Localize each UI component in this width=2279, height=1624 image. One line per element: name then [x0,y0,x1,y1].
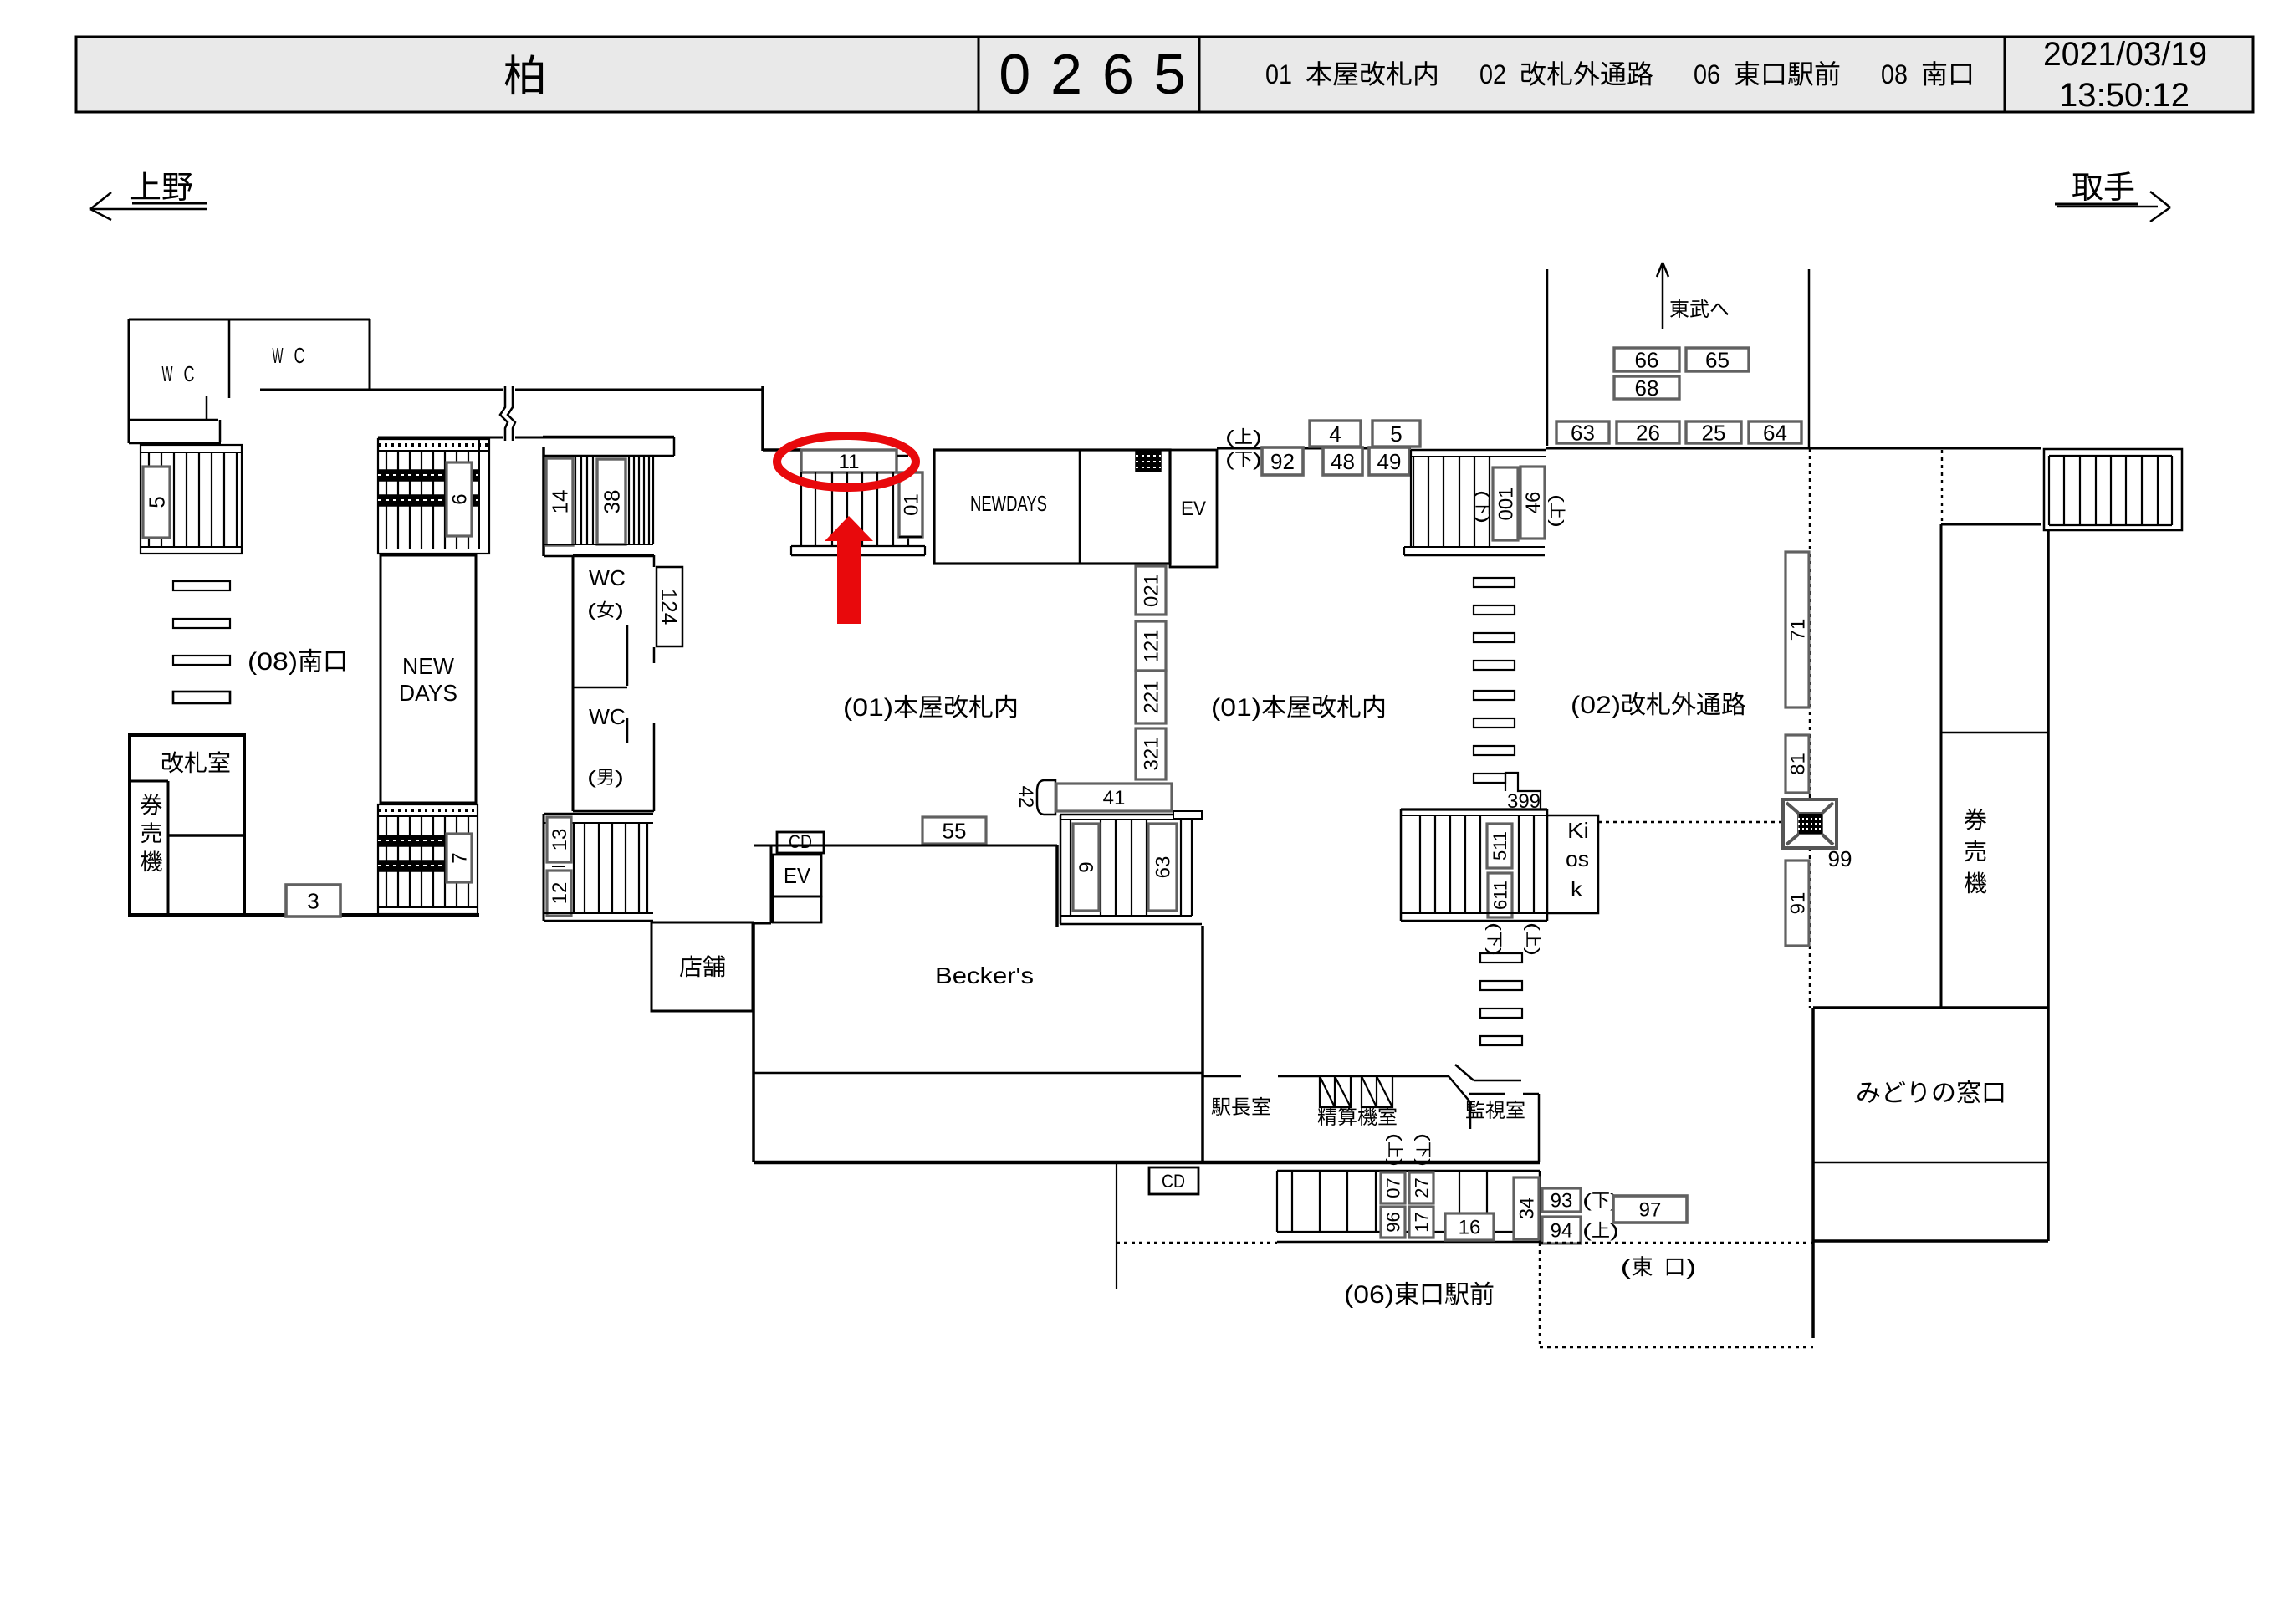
svg-text:08: 08 [1881,59,1908,89]
svg-text:6: 6 [449,493,472,504]
svg-text:92: 92 [1270,449,1295,474]
svg-text:2021/03/19: 2021/03/19 [2043,36,2207,73]
svg-text:01: 01 [901,493,923,516]
svg-text:CD: CD [789,831,812,852]
svg-text:9: 9 [1076,861,1098,872]
svg-text:C: C [294,343,305,368]
svg-text:65: 65 [1705,347,1730,372]
svg-text:NEW: NEW [402,653,455,679]
svg-text:07: 07 [1382,1177,1403,1198]
svg-text:WC: WC [589,704,626,729]
svg-text:(: ( [1582,1220,1592,1241]
svg-text:001: 001 [1495,487,1518,520]
svg-text:221: 221 [1141,680,1163,713]
svg-text:321: 321 [1141,737,1163,770]
svg-text:25: 25 [1702,420,1726,445]
svg-text:3: 3 [307,888,319,913]
svg-text:55: 55 [943,818,967,843]
svg-text:121: 121 [1141,629,1163,662]
svg-text:06: 06 [1694,59,1720,89]
svg-text:(: ( [1225,426,1235,447]
svg-text:68: 68 [1635,375,1659,401]
svg-text:k: k [1571,876,1583,901]
svg-text:0265: 0265 [999,43,1205,106]
svg-text:91: 91 [1787,892,1810,915]
svg-text:(: ( [1473,490,1491,498]
svg-text:63: 63 [1571,420,1595,445]
svg-text:(: ( [1582,1190,1592,1211]
svg-text:49: 49 [1377,449,1402,474]
svg-text:64: 64 [1763,420,1787,445]
svg-text:34: 34 [1516,1198,1539,1220]
svg-text:511: 511 [1490,831,1510,861]
svg-text:94: 94 [1551,1220,1573,1243]
svg-text:4: 4 [1329,421,1341,447]
svg-text:96: 96 [1382,1212,1403,1232]
svg-text:EV: EV [784,863,811,888]
svg-text:W: W [162,361,173,386]
svg-text:): ) [1385,1158,1403,1167]
svg-text:): ) [1473,515,1491,523]
svg-text:os: os [1566,846,1589,871]
svg-text:38: 38 [599,490,624,514]
svg-text:(: ( [587,767,597,788]
svg-text:13:50:12: 13:50:12 [2059,77,2190,114]
svg-text:14: 14 [547,490,572,514]
svg-text:(: ( [1413,1133,1432,1141]
svg-text:EV: EV [1181,498,1206,520]
svg-text:W: W [273,343,284,368]
svg-text:(01): (01) [843,694,893,722]
svg-text:WC: WC [589,565,626,590]
svg-text:27: 27 [1411,1177,1432,1198]
svg-text:41: 41 [1103,787,1126,809]
svg-text:11: 11 [839,451,860,473]
svg-text:(: ( [1385,1133,1403,1141]
svg-text:C: C [184,361,195,386]
svg-text:66: 66 [1635,347,1659,372]
svg-text:(08): (08) [248,648,298,676]
svg-text:CD: CD [1162,1171,1185,1192]
svg-text:): ) [1253,426,1262,447]
svg-text:02: 02 [1479,59,1506,89]
svg-text:81: 81 [1787,753,1810,775]
svg-text:Ki: Ki [1567,818,1589,843]
svg-text:): ) [1686,1254,1697,1279]
svg-text:(: ( [1484,922,1503,931]
svg-text:16: 16 [1459,1217,1481,1239]
svg-text:63: 63 [1152,856,1175,879]
svg-text:93: 93 [1551,1190,1573,1213]
svg-text:): ) [1523,947,1541,956]
svg-text:): ) [615,767,624,788]
svg-text:Becker's: Becker's [935,963,1034,988]
svg-text:DAYS: DAYS [399,680,457,706]
svg-text:(: ( [587,600,597,620]
svg-text:124: 124 [657,589,682,625]
svg-text:5: 5 [144,496,169,508]
svg-text:97: 97 [1639,1199,1662,1222]
svg-text:99: 99 [1828,846,1852,871]
svg-text:(02): (02) [1571,692,1621,719]
svg-text:(01): (01) [1211,694,1261,722]
svg-text:01: 01 [1265,59,1292,89]
svg-text:71: 71 [1787,619,1810,641]
svg-text:5: 5 [1390,421,1402,447]
svg-text:): ) [1413,1158,1432,1167]
svg-text:): ) [1484,947,1503,956]
svg-text:NEWDAYS: NEWDAYS [970,491,1047,516]
svg-text:42: 42 [1014,786,1037,809]
svg-text:(: ( [1225,449,1235,470]
svg-text:7: 7 [449,852,472,863]
svg-text:48: 48 [1331,449,1355,474]
svg-text:26: 26 [1636,420,1660,445]
svg-text:(: ( [1547,494,1566,503]
svg-text:611: 611 [1490,881,1510,910]
svg-text:021: 021 [1141,574,1163,607]
svg-text:13: 13 [549,829,571,851]
svg-text:): ) [1547,519,1566,528]
svg-text:(: ( [1621,1254,1632,1279]
svg-text:(06): (06) [1344,1281,1394,1309]
svg-text:46: 46 [1522,492,1545,514]
svg-text:(: ( [1523,922,1541,931]
svg-text:17: 17 [1411,1212,1432,1232]
svg-text:12: 12 [549,882,571,905]
svg-text:): ) [615,600,624,620]
